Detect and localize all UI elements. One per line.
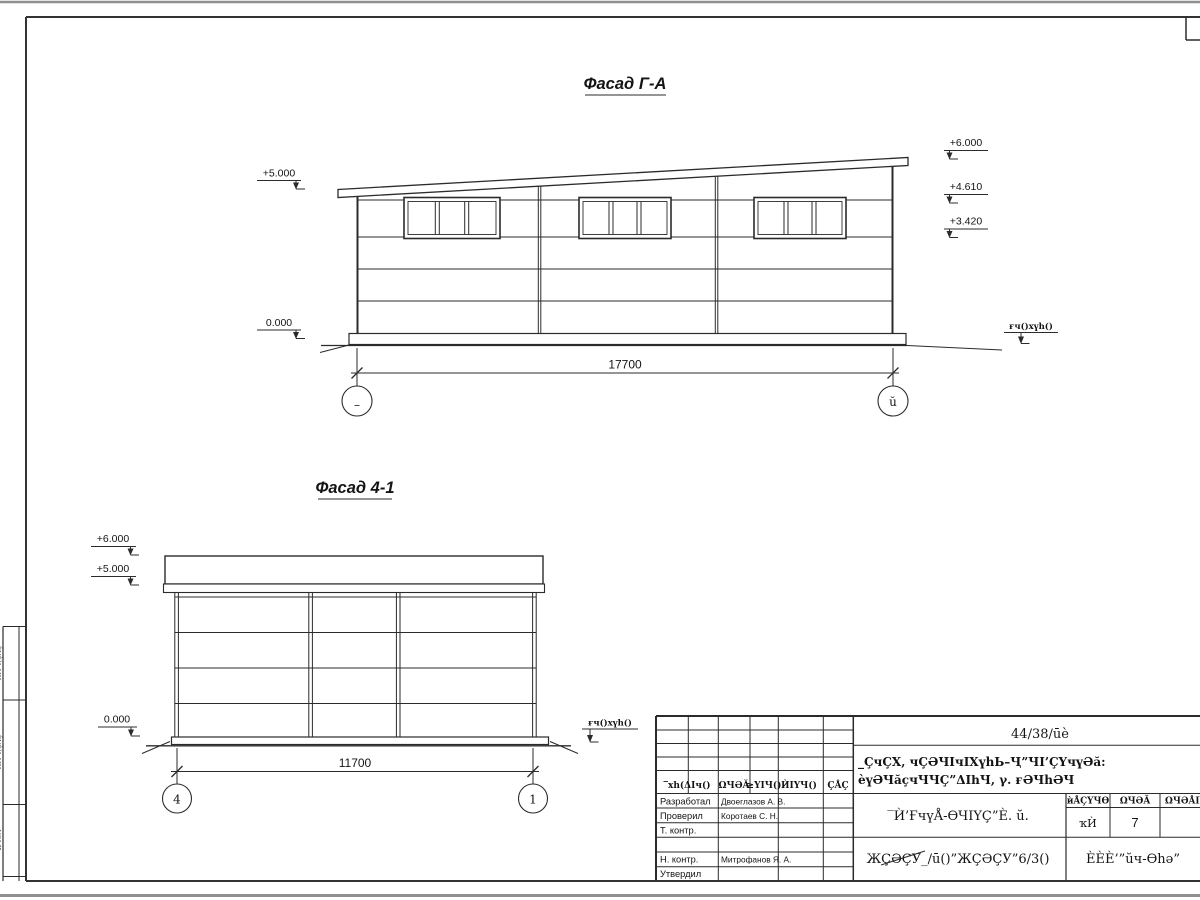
tb-col-header-ndoc: ≥ҮIЧ() — [747, 780, 782, 791]
facade-41-title: Фасад 4-1 — [315, 479, 394, 497]
dimension-value: 11700 — [339, 756, 372, 770]
facade-ga-ground-line — [320, 345, 1002, 353]
elevation-value: +6.000 — [97, 533, 130, 545]
margin-stamp-text: ЍIҮЧ(ÇÅÇ — [0, 646, 3, 681]
tb-subject-line2: èүƏЧăçчЧЧÇ”ΔIһЧ, γ. ғƏЧhƏЧ — [858, 773, 1074, 787]
tb-company-name: ÈÈÈ’”ŭч-Ѳhə” — [1086, 851, 1180, 867]
tb-sheets-header: ΩЧƏÅIҮ — [1165, 795, 1200, 807]
tb-doc-number: 44/38/ūè — [1011, 727, 1069, 742]
elevation-mark: 0.000 — [98, 714, 140, 737]
elevation-mark: +5.000 — [91, 563, 139, 586]
elevation-value: 0.000 — [266, 317, 292, 329]
axis-label: 4 — [173, 793, 181, 807]
drawing-sheet: ЍIҮЧ(ÇÅÇ ЍIҮЧ(ÇÅÇ ΩЧƏĂ Фасад Г-А — [0, 0, 1200, 900]
ground-level-mark: ғч()xүh() — [582, 718, 638, 743]
facade-ga-roof-fascia — [338, 158, 908, 198]
tb-stage-value: ҡЍ — [1079, 816, 1096, 830]
tb-row-label: Н. контр. — [660, 855, 698, 865]
facade-41-parapet-lip — [164, 584, 545, 593]
dimension-value: 17700 — [608, 358, 642, 372]
elevation-value: +6.000 — [950, 137, 983, 149]
tb-row-person: Митрофанов Я. А. — [721, 855, 791, 865]
tb-row-label: Разработал — [660, 797, 711, 807]
axis-bubble: 1 — [519, 784, 548, 813]
facade-ga-window — [579, 198, 671, 239]
elevation-value: +4.610 — [950, 181, 983, 193]
margin-stamp-text: ΩЧƏĂ — [0, 829, 3, 850]
facade-ga-window — [404, 198, 500, 239]
facade-ga-title: Фасад Г-А — [584, 75, 667, 93]
facade-ga-drawing: Фасад Г-А — [257, 75, 1058, 416]
elevation-value: +3.420 — [950, 216, 983, 228]
tb-col-header-data: ÇÅÇ — [827, 779, 848, 791]
elevation-value: 0.000 — [104, 714, 130, 726]
dimension-17700: 17700 — [351, 348, 899, 386]
axis-label: 1 — [529, 793, 537, 807]
facade-ga-window — [754, 198, 846, 239]
elevation-value: +5.000 — [263, 168, 296, 180]
title-block: ‾хh(ΔIч() ΩЧƏĂ ≥ҮIЧ() ЍIҮЧ() ÇÅÇ Разрабо… — [656, 716, 1200, 881]
tb-col-header-izm: ‾хh(ΔIч() — [664, 780, 711, 791]
axis-label: – — [354, 398, 360, 412]
tb-subject-line1: _ÇчÇХ, чÇƏЧIчIХүhЬ–Ҷ”ЧI’ÇҮчүƏă: — [858, 755, 1106, 770]
elevation-mark: +3.420 — [944, 216, 988, 239]
axis-bubble: – — [342, 386, 372, 416]
tb-row-label: Проверил — [660, 811, 703, 821]
ground-level-label: ғч()xүh() — [1009, 321, 1053, 332]
axis-label: ŭ — [889, 395, 897, 409]
ground-level-label: ғч()xүh() — [588, 718, 632, 729]
facade-41-parapet — [165, 556, 543, 584]
tb-sheet-value: 7 — [1131, 815, 1138, 830]
margin-stamp-text: ЍIҮЧ(ÇÅÇ — [0, 735, 3, 770]
axis-bubble: 4 — [163, 784, 192, 813]
elevation-mark: 0.000 — [257, 317, 305, 339]
tb-col-header-podp: ЍIҮЧ() — [781, 779, 817, 791]
left-margin-stamps: ЍIҮЧ(ÇÅÇ ЍIҮЧ(ÇÅÇ ΩЧƏĂ — [0, 627, 26, 882]
tb-stage-header: ѝÅÇҮЧѲ — [1067, 795, 1110, 807]
elevation-mark: +5.000 — [257, 168, 305, 190]
facade-41-columns — [175, 586, 536, 737]
tb-designation: ‾Ѝ’ҒчүÅ-ѲЧIҮÇ”È. ŭ. — [887, 808, 1029, 824]
facade-ga-plinth — [349, 334, 906, 345]
elevation-mark: +4.610 — [944, 181, 988, 204]
dimension-11700: 11700 — [171, 748, 539, 784]
elevation-mark: +6.000 — [91, 533, 139, 556]
tb-row-person: Двоеглазов А. В. — [721, 797, 785, 807]
tb-row-label: Утвердил — [660, 869, 701, 879]
ground-level-mark: ғч()xүh() — [1004, 321, 1058, 344]
tb-row-person: Коротаев С. Н. — [721, 811, 778, 821]
tb-row-label: Т. контр. — [660, 826, 696, 836]
axis-bubble: ŭ — [878, 386, 908, 416]
tb-sheet-header: ΩЧƏĂ — [1120, 795, 1151, 807]
facade-41-plinth — [172, 737, 549, 745]
facade-41-drawing: Фасад 4-1 — [91, 479, 638, 813]
facade-41-panel-lines — [175, 597, 536, 704]
top-right-corner-box — [1186, 17, 1200, 40]
elevation-value: +5.000 — [97, 563, 130, 575]
elevation-mark: +6.000 — [944, 137, 988, 160]
tb-order-number: ЖÇƏÇУ_/ū()”ЖÇƏÇУ”6/3() — [867, 852, 1050, 867]
